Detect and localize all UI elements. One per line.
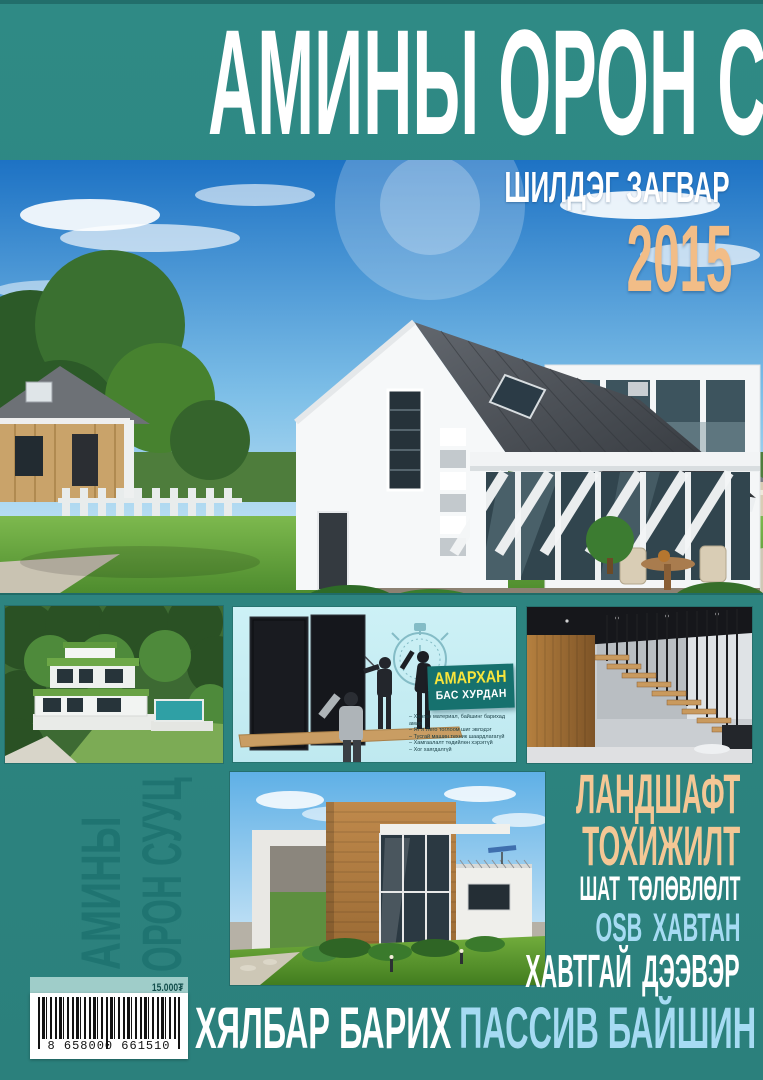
barcode-block: 15.000₮ 8 658000 661510 xyxy=(30,977,188,1059)
promo-bullet-list: Хөнгөн материал, байшинг барихад амар Яг… xyxy=(409,714,515,754)
spine-title-line2: ОРОН СУУЦ xyxy=(133,777,191,972)
barcode: 8 658000 661510 xyxy=(30,993,188,1059)
barcode-digits: 8 658000 661510 xyxy=(30,1039,188,1053)
feature-flat-roof: ХАВТГАЙ ДЭЭВЭР xyxy=(311,948,740,994)
promo-panel: АМАРХАН БАС ХУРДАН Хөнгөн материал, байш… xyxy=(233,607,516,762)
top-border xyxy=(0,0,763,4)
hero-year: 2015 xyxy=(521,212,732,307)
masthead: АМИНЫ ОРОН СУУЦ xyxy=(0,0,763,160)
pool-deck xyxy=(151,721,213,731)
promo-subheadline: БАС ХУРДАН xyxy=(432,688,510,703)
thumbnail-staircase-photo xyxy=(527,607,752,763)
feature-osb-board: OSB ХАВТАН xyxy=(472,908,740,948)
promo-headline: АМАРХАН xyxy=(434,668,507,688)
promo-label: АМАРХАН БАС ХУРДАН xyxy=(427,664,514,711)
bullet-item: Яг л Лего тоглоом шиг эвлэдэг xyxy=(409,727,515,734)
swimming-pool xyxy=(155,700,203,721)
hero-tagline: ШИЛДЭГ ЗАГВАР xyxy=(348,166,730,210)
bullet-item: Хамгаалалт төдийлөн хэрэггүй xyxy=(409,740,515,747)
footer-headline-white: ХЯЛБАР БАРИХ xyxy=(195,996,451,1061)
masthead-title: АМИНЫ ОРОН СУУЦ xyxy=(208,22,555,142)
bullet-item: Хог хаягдалгүй xyxy=(409,747,515,754)
price-tag: 15.000₮ xyxy=(30,977,188,993)
feature-stair-planning: ШАТ ТӨЛӨВЛӨЛТ xyxy=(431,872,740,906)
thumbnail-green-roof-house-photo xyxy=(5,606,223,763)
bullet-item: Хөнгөн материал, байшинг барихад амар xyxy=(409,714,515,727)
barcode-bars xyxy=(38,997,180,1039)
feature-landscaping-line2: ТОХИЖИЛТ xyxy=(424,818,740,874)
spine-title-line1: АМИНЫ xyxy=(72,816,130,970)
magazine-cover: АМИНЫ ОРОН СУУЦ xyxy=(0,0,763,1080)
footer-headline-blue: ПАССИВ БАЙШИН xyxy=(459,996,756,1061)
hero-photo: ШИЛДЭГ ЗАГВАР 2015 xyxy=(0,160,763,595)
